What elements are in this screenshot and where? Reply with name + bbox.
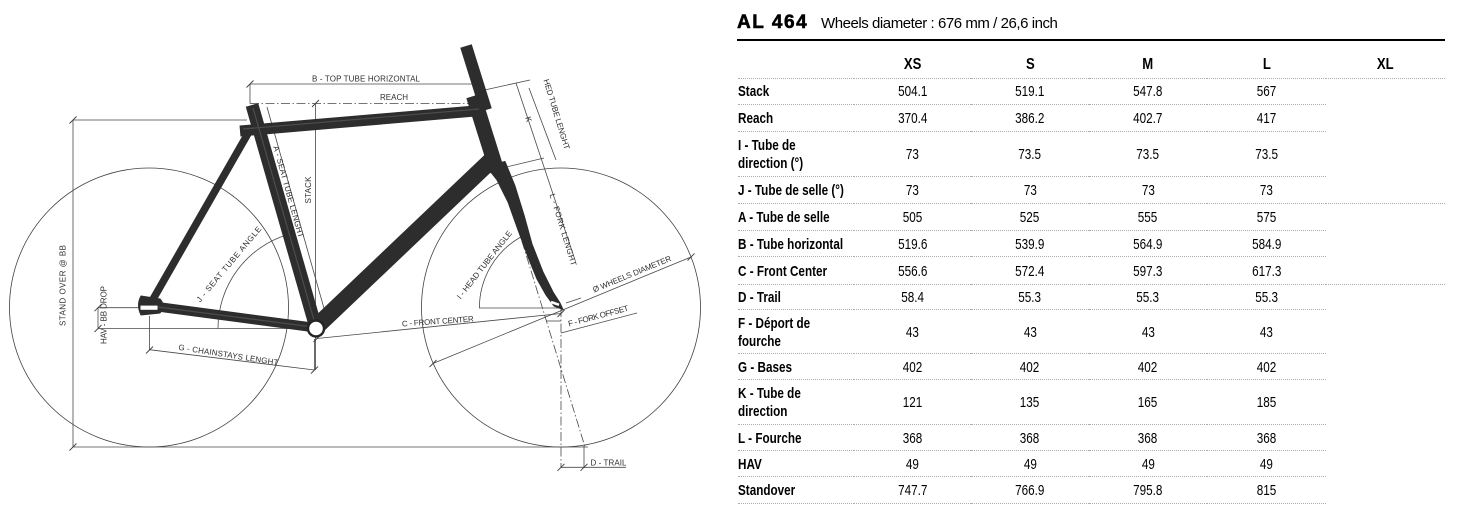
svg-text:I - HEAD TUBE ANGLE: I - HEAD TUBE ANGLE (455, 229, 514, 301)
svg-text:L - FORK LENGHT: L - FORK LENGHT (548, 193, 579, 267)
svg-text:HAV - BB DROP: HAV - BB DROP (100, 286, 109, 344)
svg-text:B - TOP TUBE HORIZONTAL: B - TOP TUBE HORIZONTAL (312, 75, 421, 84)
svg-text:REACH: REACH (380, 93, 408, 102)
svg-text:J - SEAT TUBE ANGLE: J - SEAT TUBE ANGLE (195, 225, 264, 304)
svg-text:STACK: STACK (304, 176, 313, 204)
svg-text:F - FORK OFFSET: F - FORK OFFSET (567, 304, 629, 329)
svg-text:K: K (523, 115, 533, 123)
svg-text:D - TRAIL: D - TRAIL (591, 459, 628, 468)
svg-text:HED TUBE LENGHT: HED TUBE LENGHT (541, 78, 571, 151)
svg-text:Ø WHEELS DIAMETER: Ø WHEELS DIAMETER (592, 254, 673, 294)
svg-text:STAND OVER @ BB: STAND OVER @ BB (59, 245, 68, 326)
